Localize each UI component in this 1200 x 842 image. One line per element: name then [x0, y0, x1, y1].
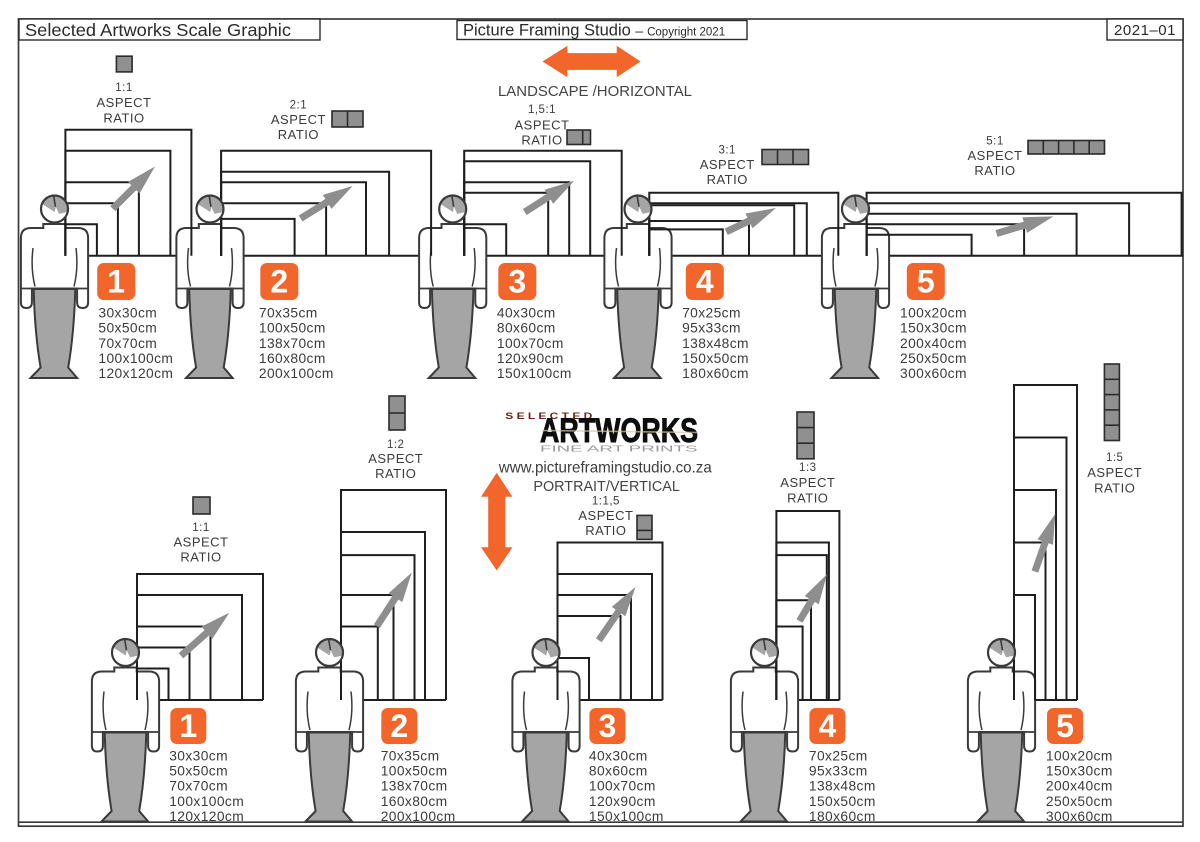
svg-text:50x50cm: 50x50cm — [98, 321, 157, 336]
svg-text:95x33cm: 95x33cm — [682, 321, 741, 336]
svg-text:RATIO: RATIO — [180, 550, 221, 565]
svg-text:1:5: 1:5 — [1106, 452, 1124, 464]
svg-text:200x100cm: 200x100cm — [259, 366, 334, 381]
svg-text:70x70cm: 70x70cm — [98, 336, 157, 351]
svg-text:150x100cm: 150x100cm — [497, 366, 572, 381]
svg-text:Selected Artworks Scale Graphi: Selected Artworks Scale Graphic — [25, 20, 291, 40]
svg-text:200x40cm: 200x40cm — [1046, 779, 1113, 794]
svg-text:ASPECT: ASPECT — [700, 157, 755, 172]
svg-text:LANDSCAPE /HORIZONTAL: LANDSCAPE /HORIZONTAL — [498, 84, 692, 100]
svg-text:150x30cm: 150x30cm — [1046, 764, 1113, 779]
svg-text:100x50cm: 100x50cm — [259, 321, 326, 336]
svg-text:70x70cm: 70x70cm — [169, 779, 228, 794]
svg-text:1:1,5: 1:1,5 — [592, 496, 620, 508]
svg-text:2: 2 — [270, 264, 288, 300]
svg-text:RATIO: RATIO — [375, 466, 416, 481]
svg-text:1:3: 1:3 — [799, 462, 817, 474]
svg-text:180x60cm: 180x60cm — [682, 366, 749, 381]
svg-text:250x50cm: 250x50cm — [1046, 794, 1113, 809]
svg-text:RATIO: RATIO — [1094, 481, 1135, 496]
svg-text:RATIO: RATIO — [278, 127, 319, 142]
svg-text:100x20cm: 100x20cm — [1046, 748, 1113, 763]
svg-text:2021–01: 2021–01 — [1114, 22, 1176, 39]
svg-text:138x48cm: 138x48cm — [682, 336, 749, 351]
svg-text:3: 3 — [599, 708, 617, 744]
svg-text:70x25cm: 70x25cm — [809, 748, 868, 763]
svg-text:www.pictureframingstudio.co.za: www.pictureframingstudio.co.za — [498, 459, 712, 476]
svg-text:ASPECT: ASPECT — [271, 112, 326, 127]
svg-text:4: 4 — [696, 264, 714, 300]
svg-text:3: 3 — [508, 264, 526, 300]
svg-text:120x90cm: 120x90cm — [589, 794, 656, 809]
svg-text:ASPECT: ASPECT — [96, 95, 151, 110]
svg-text:138x70cm: 138x70cm — [381, 779, 448, 794]
svg-text:50x50cm: 50x50cm — [169, 764, 228, 779]
svg-text:1,5:1: 1,5:1 — [528, 104, 556, 116]
svg-text:1:2: 1:2 — [387, 439, 405, 451]
svg-text:ASPECT: ASPECT — [1087, 465, 1142, 480]
svg-text:4: 4 — [819, 708, 837, 744]
svg-text:180x60cm: 180x60cm — [809, 809, 876, 824]
svg-text:RATIO: RATIO — [787, 491, 828, 506]
svg-text:100x70cm: 100x70cm — [589, 779, 656, 794]
svg-text:RATIO: RATIO — [707, 172, 748, 187]
svg-text:ASPECT: ASPECT — [368, 451, 423, 466]
svg-text:1:1: 1:1 — [115, 82, 133, 94]
svg-text:100x70cm: 100x70cm — [497, 336, 564, 351]
svg-text:5: 5 — [1056, 708, 1074, 744]
svg-text:3:1: 3:1 — [718, 145, 736, 157]
svg-text:150x30cm: 150x30cm — [900, 321, 967, 336]
svg-text:200x100cm: 200x100cm — [381, 809, 456, 824]
svg-text:RATIO: RATIO — [585, 523, 626, 538]
svg-text:120x120cm: 120x120cm — [169, 809, 244, 824]
svg-text:2:1: 2:1 — [290, 99, 308, 111]
svg-text:ASPECT: ASPECT — [967, 148, 1022, 163]
svg-text:250x50cm: 250x50cm — [900, 351, 967, 366]
svg-text:5: 5 — [917, 264, 935, 300]
svg-text:ASPECT: ASPECT — [514, 118, 569, 133]
svg-text:70x35cm: 70x35cm — [259, 305, 318, 320]
svg-text:120x90cm: 120x90cm — [497, 351, 564, 366]
svg-text:30x30cm: 30x30cm — [98, 305, 157, 320]
svg-text:ASPECT: ASPECT — [780, 475, 835, 490]
svg-text:100x100cm: 100x100cm — [169, 794, 244, 809]
svg-text:RATIO: RATIO — [974, 163, 1015, 178]
svg-text:160x80cm: 160x80cm — [259, 351, 326, 366]
svg-text:40x30cm: 40x30cm — [589, 748, 648, 763]
svg-text:200x40cm: 200x40cm — [900, 336, 967, 351]
svg-text:300x60cm: 300x60cm — [900, 366, 967, 381]
svg-text:ASPECT: ASPECT — [578, 508, 633, 523]
svg-text:150x50cm: 150x50cm — [682, 351, 749, 366]
svg-text:40x30cm: 40x30cm — [497, 305, 556, 320]
svg-text:2: 2 — [390, 708, 408, 744]
svg-text:138x48cm: 138x48cm — [809, 779, 876, 794]
svg-text:150x50cm: 150x50cm — [809, 794, 876, 809]
svg-text:80x60cm: 80x60cm — [497, 321, 556, 336]
svg-text:ASPECT: ASPECT — [173, 535, 228, 550]
svg-text:100x20cm: 100x20cm — [900, 305, 967, 320]
svg-text:RATIO: RATIO — [103, 111, 144, 126]
svg-text:150x100cm: 150x100cm — [589, 809, 664, 824]
svg-text:120x120cm: 120x120cm — [98, 366, 173, 381]
svg-text:100x50cm: 100x50cm — [381, 764, 448, 779]
svg-text:70x25cm: 70x25cm — [682, 305, 741, 320]
svg-text:100x100cm: 100x100cm — [98, 351, 173, 366]
svg-text:PORTRAIT/VERTICAL: PORTRAIT/VERTICAL — [533, 478, 680, 495]
svg-text:1: 1 — [107, 264, 125, 300]
svg-text:70x35cm: 70x35cm — [381, 748, 440, 763]
svg-text:95x33cm: 95x33cm — [809, 764, 868, 779]
svg-text:FINE ART PRINTS: FINE ART PRINTS — [540, 443, 698, 453]
svg-text:1: 1 — [179, 708, 197, 744]
svg-text:160x80cm: 160x80cm — [381, 794, 448, 809]
svg-text:1:1: 1:1 — [192, 522, 210, 534]
svg-text:138x70cm: 138x70cm — [259, 336, 326, 351]
svg-text:80x60cm: 80x60cm — [589, 764, 648, 779]
svg-text:30x30cm: 30x30cm — [169, 748, 228, 763]
svg-text:5:1: 5:1 — [986, 136, 1004, 148]
svg-text:300x60cm: 300x60cm — [1046, 809, 1113, 824]
svg-text:RATIO: RATIO — [521, 133, 562, 148]
